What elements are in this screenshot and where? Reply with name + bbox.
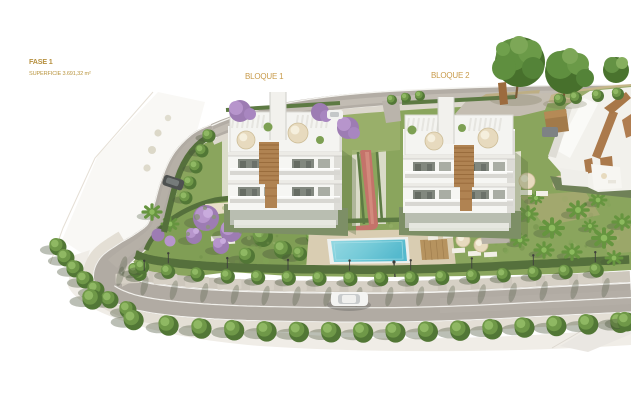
svg-text:SUPERFICIE 3.691,32 m²: SUPERFICIE 3.691,32 m² <box>29 71 91 77</box>
svg-text:BLOQUE 2: BLOQUE 2 <box>431 71 470 80</box>
svg-text:BLOQUE 1: BLOQUE 1 <box>245 72 284 81</box>
svg-text:FASE 1: FASE 1 <box>29 57 53 66</box>
